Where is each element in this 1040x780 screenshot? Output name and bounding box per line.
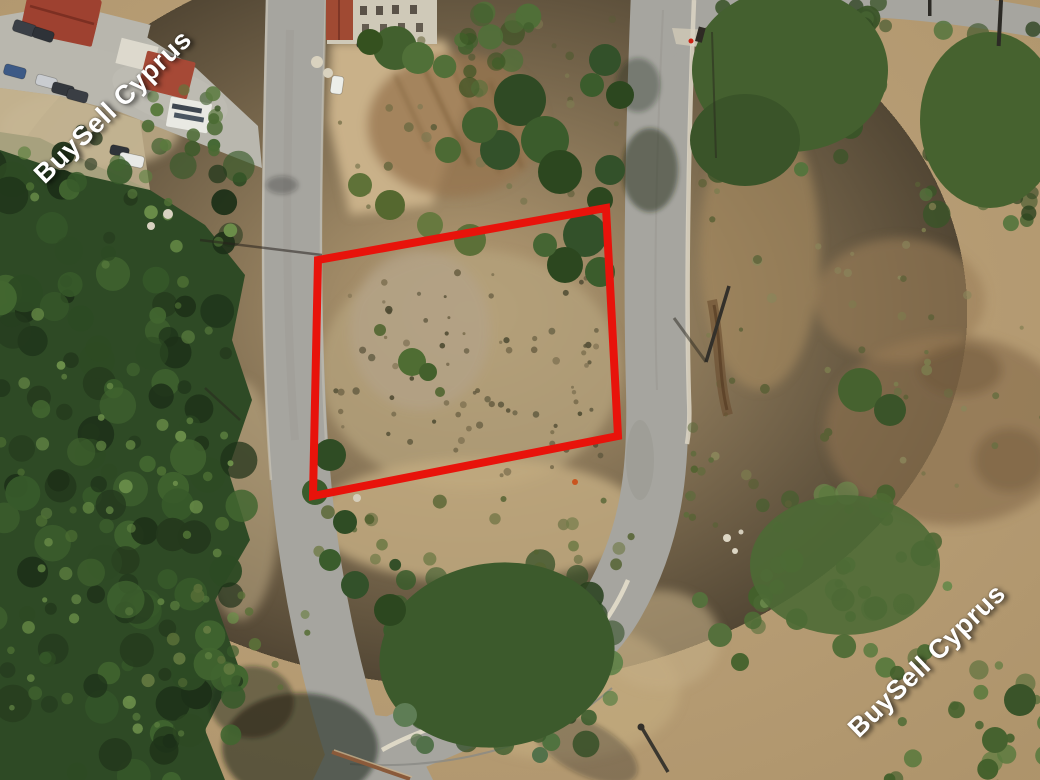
red-marker <box>689 39 694 44</box>
car <box>330 75 344 94</box>
aerial-photo: BuySell Cyprus BuySell Cyprus <box>0 0 1040 780</box>
scene-svg <box>0 0 1040 780</box>
utility-pole <box>928 0 932 16</box>
